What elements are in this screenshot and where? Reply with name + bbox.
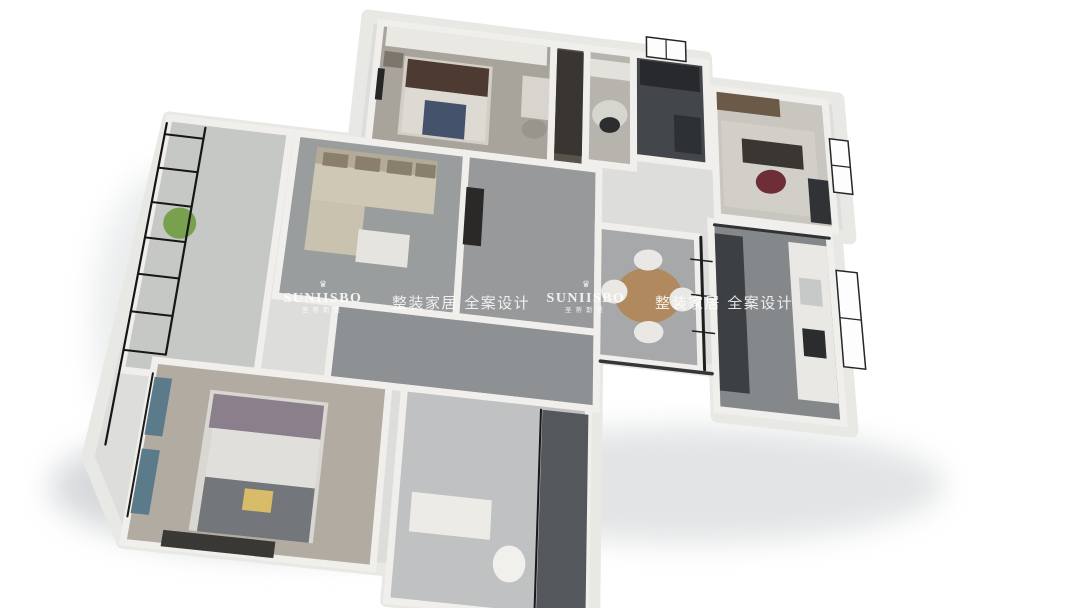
- floorplan-render: ♛ SUNIISBO 圣蒂斯堡 整装家居 全案设计 ♛ SUNIISBO 圣蒂斯…: [0, 0, 1080, 608]
- chair-2: [522, 120, 547, 139]
- closet-cabinet: [554, 50, 584, 157]
- dining-chair-1: [634, 250, 663, 271]
- sofa-cushion-4: [415, 163, 436, 179]
- bath-top-vanity: [674, 115, 702, 155]
- dining-chair-2: [634, 321, 664, 343]
- crown-icon: ♛: [281, 281, 365, 291]
- hall-sideboard: [463, 187, 485, 246]
- shower-dark: [536, 410, 588, 608]
- master-yellow-pillow: [242, 488, 274, 513]
- watermark-tagline-2: 整装家居 全案设计: [655, 292, 793, 313]
- bed-2-runner: [422, 100, 466, 140]
- kitchen-sink: [799, 278, 823, 307]
- nightstand-2: [383, 51, 404, 69]
- study-chair: [756, 170, 786, 194]
- sofa-chaise: [304, 200, 365, 256]
- study-rug: [721, 120, 821, 218]
- study-cabinet: [808, 178, 832, 225]
- brand-name: SUNIISBO: [281, 291, 365, 306]
- crown-icon: ♛: [544, 281, 628, 291]
- toilet: [493, 546, 526, 583]
- watermark-logo-1: ♛ SUNIISBO 圣蒂斯堡: [281, 281, 365, 315]
- nook-chair: [599, 117, 620, 133]
- kitchen-stove: [802, 328, 826, 358]
- plan-svg: [0, 0, 1080, 608]
- brand-name-cn: 圣蒂斯堡: [281, 307, 365, 314]
- watermark-tagline-1: 整装家居 全案设计: [392, 292, 530, 313]
- coffee-table: [355, 229, 410, 268]
- brand-name-cn: 圣蒂斯堡: [544, 307, 628, 314]
- watermark-logo-2: ♛ SUNIISBO 圣蒂斯堡: [544, 281, 628, 315]
- desk-2: [521, 76, 550, 121]
- brand-name: SUNIISBO: [544, 291, 628, 306]
